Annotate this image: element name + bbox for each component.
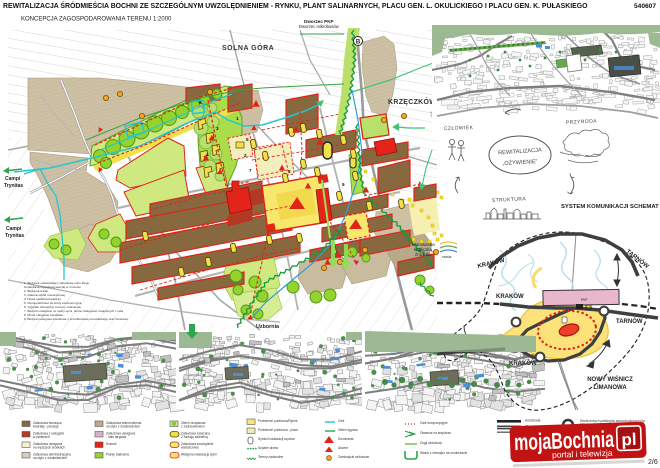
svg-text:w parterach: w parterach [33,435,50,439]
svg-text:PKP: PKP [581,298,587,302]
svg-text:Trynitas: Trynitas [5,233,24,239]
svg-text:SOLNA GÓRA: SOLNA GÓRA [222,43,274,52]
svg-text:Osie kompozycyjne: Osie kompozycyjne [420,421,448,425]
svg-text:NOWY WIŚNICZ: NOWY WIŚNICZ [587,376,633,383]
svg-text:SYSTEM KOMUNIKACJI SCHEMAT: SYSTEM KOMUNIKACJI SCHEMAT [561,204,659,210]
svg-text:wartościowa: wartościowa [181,446,199,450]
svg-text:Autostrada: Autostrada [525,419,541,423]
svg-text:9. Budynki usługowo-handlowe z: 9. Budynki usługowo-handlowe z przodbudo… [24,317,128,321]
svg-text:z zadrzewieniem: z zadrzewieniem [181,425,205,429]
svg-text:na stylu z śródmieściem: na stylu z śródmieściem [33,456,67,460]
svg-text:CZŁOWIEK: CZŁOWIEK [444,125,474,132]
svg-text:Ciek: Ciek [338,419,345,423]
svg-text:LIMANOWA: LIMANOWA [593,385,627,391]
svg-text:540607: 540607 [634,3,656,10]
svg-text:KRZĘCZKÓW: KRZĘCZKÓW [388,97,436,106]
svg-text:B: B [356,40,361,46]
svg-text:kwartały - pierzeje: kwartały - pierzeje [33,425,59,429]
svg-text:9: 9 [342,182,345,187]
svg-text:Szpaler drzew: Szpaler drzew [258,446,279,450]
svg-text:Dominanta: Dominanta [338,437,354,441]
svg-text:2/6: 2/6 [648,459,658,466]
svg-text:Zieleń łęgowa: Zieleń łęgowa [338,428,358,432]
svg-text:miasła: miasła [442,255,451,259]
svg-text:7: 7 [249,168,252,173]
svg-text:na wyższych środkach: na wyższych środkach [33,446,65,450]
svg-text:1: 1 [236,116,239,121]
svg-text:na stylu z śródmieściem: na stylu z śródmieściem [106,425,140,429]
svg-text:8: 8 [288,169,291,174]
svg-text:Otwarcie na krajobraz: Otwarcie na krajobraz [420,431,451,435]
svg-text:KONCEPCJA ZAGOSPODAROWANIA TER: KONCEPCJA ZAGOSPODAROWANIA TERENU 1:2000 [21,17,172,23]
svg-text:Kościół: Kościół [106,442,117,446]
svg-text:Ciągi widokowy: Ciągi widokowy [420,441,442,445]
svg-text:4: 4 [206,152,209,157]
svg-text:TARNÓW: TARNÓW [616,317,643,325]
svg-text:KRAKÓW: KRAKÓW [509,359,537,367]
svg-text:Widok z zewnątrz na śródmieści: Widok z zewnątrz na śródmieście [420,451,468,455]
svg-text:pl: pl [621,430,637,450]
svg-text:Campi: Campi [6,226,22,232]
svg-text:Zamknięcie widokowe: Zamknięcie widokowe [338,455,369,459]
svg-text:portal i telewizja: portal i telewizja [552,448,613,460]
svg-text:Wstępna lokalizacja tężni: Wstępna lokalizacja tężni [181,453,217,457]
svg-text:Planty Salinarne: Planty Salinarne [106,453,129,457]
svg-text:Campi: Campi [5,176,21,182]
svg-text:REWITALIZACJA ŚRÓDMIEŚCIA BOCH: REWITALIZACJA ŚRÓDMIEŚCIA BOCHNI ZE SZCZ… [3,1,588,10]
svg-text:Uzbornia: Uzbornia [256,324,280,330]
svg-text:Tereny nadwodne: Tereny nadwodne [258,455,283,459]
svg-text:6: 6 [199,100,202,105]
svg-text:KRAKÓW: KRAKÓW [496,292,524,300]
svg-text:Akcent: Akcent [338,446,348,450]
svg-text:Przestrzeń publiczna/Rynek: Przestrzeń publiczna/Rynek [258,419,298,423]
svg-text:Symbol lokalizacji szybów: Symbol lokalizacji szybów [258,437,295,441]
svg-text:Trynitas: Trynitas [4,183,23,189]
svg-text:3: 3 [216,126,219,131]
svg-text:2: 2 [244,153,247,158]
svg-text:- hale targowa: - hale targowa [106,435,126,439]
svg-text:Z funkcją salinarną: Z funkcją salinarną [181,435,208,439]
svg-text:Dworzec mikrobusów: Dworzec mikrobusów [299,24,340,29]
svg-text:Przestrzeń publiczna - place: Przestrzeń publiczna - place [258,428,298,432]
svg-text:źródełko: źródełko [415,252,432,257]
svg-text:5: 5 [246,137,249,142]
